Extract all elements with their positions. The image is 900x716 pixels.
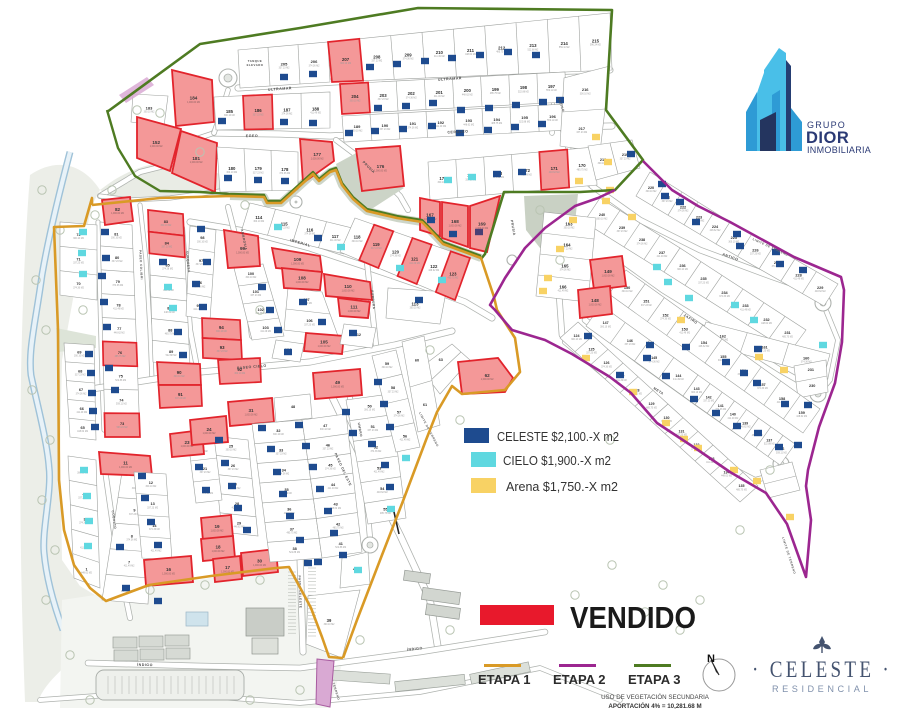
svg-text:208: 208 xyxy=(373,55,381,60)
svg-text:337.23 M2: 337.23 M2 xyxy=(304,324,316,326)
svg-text:337.23 M2: 337.23 M2 xyxy=(586,353,598,355)
svg-text:N: N xyxy=(707,653,715,665)
svg-text:485.75 M2: 485.75 M2 xyxy=(115,356,127,358)
svg-text:411.49 M2: 411.49 M2 xyxy=(328,488,339,490)
svg-text:374.36 M2: 374.36 M2 xyxy=(309,65,321,67)
svg-text:55: 55 xyxy=(383,508,387,512)
svg-text:1,000.00 M2: 1,000.00 M2 xyxy=(602,275,615,277)
svg-text:1,000.00 M2: 1,000.00 M2 xyxy=(449,226,462,228)
svg-text:38: 38 xyxy=(292,547,296,551)
svg-text:300.10 M2: 300.10 M2 xyxy=(111,238,123,240)
svg-text:337.23 M2: 337.23 M2 xyxy=(200,472,212,474)
svg-text:140: 140 xyxy=(730,413,736,417)
svg-text:RESIDENCIAL: RESIDENCIAL xyxy=(772,684,872,694)
svg-text:1,000.00 M2: 1,000.00 M2 xyxy=(181,446,194,448)
svg-text:485.75 M2: 485.75 M2 xyxy=(491,123,503,125)
svg-text:485.75 M2: 485.75 M2 xyxy=(333,528,345,530)
svg-text:374.36 M2: 374.36 M2 xyxy=(325,468,337,470)
svg-text:374.36 M2: 374.36 M2 xyxy=(162,268,174,270)
svg-text:231: 231 xyxy=(784,331,790,335)
svg-text:159: 159 xyxy=(799,411,805,415)
svg-text:300.10 M2: 300.10 M2 xyxy=(352,130,364,132)
svg-text:559.11 M2: 559.11 M2 xyxy=(559,47,570,49)
svg-text:237: 237 xyxy=(659,251,665,255)
svg-text:1,000.00 M2: 1,000.00 M2 xyxy=(203,433,216,435)
svg-text:13: 13 xyxy=(150,502,154,506)
svg-text:1,000.00 M2: 1,000.00 M2 xyxy=(291,263,304,265)
svg-text:214: 214 xyxy=(561,41,569,46)
svg-text:1: 1 xyxy=(85,568,87,572)
svg-text:APORTACIÓN 4% = 10,281.68 M: APORTACIÓN 4% = 10,281.68 M xyxy=(608,702,701,710)
svg-text:146: 146 xyxy=(627,339,633,343)
svg-text:337.23 M2: 337.23 M2 xyxy=(698,282,710,284)
svg-text:300.10 M2: 300.10 M2 xyxy=(145,486,157,488)
svg-text:70: 70 xyxy=(76,282,80,286)
svg-text:105: 105 xyxy=(320,340,328,345)
svg-text:300.10 M2: 300.10 M2 xyxy=(253,221,265,223)
svg-text:337.23 M2: 337.23 M2 xyxy=(253,114,265,116)
svg-text:559.11 M2: 559.11 M2 xyxy=(546,90,557,92)
svg-text:300.10 M2: 300.10 M2 xyxy=(646,191,658,193)
svg-text:131: 131 xyxy=(679,430,685,434)
svg-text:337.23 M2: 337.23 M2 xyxy=(322,449,334,451)
svg-text:337.23 M2: 337.23 M2 xyxy=(641,305,653,307)
svg-text:337.23 M2: 337.23 M2 xyxy=(388,391,400,393)
svg-text:189: 189 xyxy=(354,124,361,129)
svg-text:337.23 M2: 337.23 M2 xyxy=(250,295,262,297)
svg-text:448.62 M2: 448.62 M2 xyxy=(463,124,475,126)
svg-text:300.10 M2: 300.10 M2 xyxy=(73,238,85,240)
svg-text:300.10 M2: 300.10 M2 xyxy=(410,308,422,310)
svg-text:337.23 M2: 337.23 M2 xyxy=(703,401,715,403)
svg-text:374.36 M2: 374.36 M2 xyxy=(390,255,402,257)
svg-text:238: 238 xyxy=(639,238,645,242)
svg-text:1,000.00 M2: 1,000.00 M2 xyxy=(331,386,344,388)
svg-text:198: 198 xyxy=(520,85,528,90)
svg-text:1,000.00 M2: 1,000.00 M2 xyxy=(318,346,331,348)
svg-text:195: 195 xyxy=(521,115,528,120)
svg-text:337.23 M2: 337.23 M2 xyxy=(617,231,629,233)
svg-text:111: 111 xyxy=(350,305,358,310)
svg-text:91: 91 xyxy=(178,392,183,397)
svg-text:57: 57 xyxy=(397,410,401,414)
svg-text:149: 149 xyxy=(604,269,612,274)
svg-text:75: 75 xyxy=(119,375,123,379)
svg-text:559.11 M2: 559.11 M2 xyxy=(116,404,127,406)
svg-text:191: 191 xyxy=(409,121,416,126)
svg-text:240: 240 xyxy=(599,213,605,217)
svg-text:ELEVADO: ELEVADO xyxy=(247,63,264,67)
svg-text:60: 60 xyxy=(415,358,419,362)
svg-text:203: 203 xyxy=(380,93,388,98)
svg-text:300.10 M2: 300.10 M2 xyxy=(324,624,336,626)
svg-text:81: 81 xyxy=(114,232,118,236)
svg-text:12: 12 xyxy=(149,481,153,485)
svg-text:220: 220 xyxy=(648,186,654,190)
svg-text:374.36 M2: 374.36 M2 xyxy=(678,211,690,213)
svg-text:448.62 M2: 448.62 M2 xyxy=(796,416,808,418)
svg-text:522.88 M2: 522.88 M2 xyxy=(764,444,776,446)
svg-text:411.49 M2: 411.49 M2 xyxy=(113,309,124,311)
svg-text:337.23 M2: 337.23 M2 xyxy=(662,201,674,203)
svg-text:184: 184 xyxy=(190,96,198,101)
svg-text:337.23 M2: 337.23 M2 xyxy=(379,129,391,131)
svg-text:300.10 M2: 300.10 M2 xyxy=(197,241,209,243)
svg-text:187: 187 xyxy=(283,107,291,112)
svg-text:ETAPA 1: ETAPA 1 xyxy=(478,672,531,687)
svg-text:411.49 M2: 411.49 M2 xyxy=(434,96,445,98)
svg-text:135: 135 xyxy=(739,484,745,488)
svg-text:Arena $1,750.-X m2: Arena $1,750.-X m2 xyxy=(506,479,618,494)
svg-text:337.23 M2: 337.23 M2 xyxy=(75,375,87,377)
svg-text:61: 61 xyxy=(423,403,427,407)
svg-text:448.62 M2: 448.62 M2 xyxy=(428,270,440,272)
svg-text:171: 171 xyxy=(551,166,559,171)
svg-text:411.49 M2: 411.49 M2 xyxy=(260,331,271,333)
svg-text:411.49 M2: 411.49 M2 xyxy=(728,418,739,420)
svg-text:374.36 M2: 374.36 M2 xyxy=(126,540,138,542)
svg-text:374.36 M2: 374.36 M2 xyxy=(757,388,769,390)
svg-text:374.36 M2: 374.36 M2 xyxy=(406,97,418,99)
svg-text:41: 41 xyxy=(339,542,343,546)
svg-text:217: 217 xyxy=(578,126,585,131)
svg-text:103: 103 xyxy=(262,326,268,330)
svg-text:448.62 M2: 448.62 M2 xyxy=(114,332,126,334)
svg-text:177: 177 xyxy=(313,152,321,157)
svg-text:33: 33 xyxy=(279,449,283,453)
svg-text:90: 90 xyxy=(177,370,182,375)
svg-text:411.49 M2: 411.49 M2 xyxy=(679,332,690,334)
svg-text:337.23 M2: 337.23 M2 xyxy=(750,254,762,256)
svg-text:158: 158 xyxy=(779,397,785,401)
svg-text:485.75 M2: 485.75 M2 xyxy=(380,513,392,515)
svg-text:9: 9 xyxy=(133,509,135,513)
svg-text:300.10 M2: 300.10 M2 xyxy=(160,225,172,227)
svg-text:CIELO $1,900.-X m2: CIELO $1,900.-X m2 xyxy=(503,453,611,468)
svg-text:23: 23 xyxy=(184,440,190,445)
svg-text:98: 98 xyxy=(200,236,204,240)
svg-text:235: 235 xyxy=(700,277,706,281)
svg-text:1,000.00 M2: 1,000.00 M2 xyxy=(211,530,224,532)
svg-text:39: 39 xyxy=(327,618,332,623)
svg-text:42: 42 xyxy=(336,522,340,526)
svg-text:110: 110 xyxy=(344,284,352,289)
svg-text:1,000.00 M2: 1,000.00 M2 xyxy=(342,290,355,292)
svg-text:79: 79 xyxy=(116,280,120,284)
svg-text:1,000.00 M2: 1,000.00 M2 xyxy=(119,467,132,469)
svg-text:300.10 M2: 300.10 M2 xyxy=(320,429,332,431)
svg-text:192: 192 xyxy=(437,120,444,125)
svg-text:137: 137 xyxy=(766,439,772,443)
svg-text:522.88 M2: 522.88 M2 xyxy=(519,121,531,123)
svg-text:97: 97 xyxy=(199,259,203,263)
svg-text:411.49 M2: 411.49 M2 xyxy=(76,412,87,414)
svg-text:337.23 M2: 337.23 M2 xyxy=(279,68,291,70)
svg-text:300.10 M2: 300.10 M2 xyxy=(224,115,236,117)
svg-text:411.49 M2: 411.49 M2 xyxy=(558,291,569,293)
svg-text:101: 101 xyxy=(253,290,259,294)
svg-text:337.23 M2: 337.23 M2 xyxy=(367,430,379,432)
svg-text:1,000.00 M2: 1,000.00 M2 xyxy=(162,573,175,575)
svg-text:183: 183 xyxy=(146,106,153,111)
svg-text:178: 178 xyxy=(281,167,289,172)
svg-text:300.10 M2: 300.10 M2 xyxy=(382,367,394,369)
svg-text:216: 216 xyxy=(582,87,589,92)
svg-text:448.62 M2: 448.62 M2 xyxy=(549,172,561,174)
svg-text:120: 120 xyxy=(392,249,400,254)
svg-text:67: 67 xyxy=(79,388,83,392)
svg-text:411.49 M2: 411.49 M2 xyxy=(151,550,162,552)
svg-text:78: 78 xyxy=(116,304,120,308)
svg-text:1,000.00 M2: 1,000.00 M2 xyxy=(190,162,203,164)
svg-text:374.36 M2: 374.36 M2 xyxy=(660,319,672,321)
svg-text:448.62 M2: 448.62 M2 xyxy=(815,291,827,293)
svg-text:448.62 M2: 448.62 M2 xyxy=(740,426,752,428)
svg-text:19: 19 xyxy=(214,524,220,529)
svg-text:93: 93 xyxy=(220,345,225,350)
svg-text:485.75 M2: 485.75 M2 xyxy=(736,489,748,491)
svg-text:53: 53 xyxy=(377,466,381,470)
svg-text:337.23 M2: 337.23 M2 xyxy=(175,398,187,400)
svg-text:411.49 M2: 411.49 M2 xyxy=(740,309,751,311)
svg-text:210: 210 xyxy=(436,50,444,55)
svg-text:239: 239 xyxy=(619,226,625,230)
svg-text:CELESTE $2,100.-X m2: CELESTE $2,100.-X m2 xyxy=(497,429,619,444)
svg-text:374.36 M2: 374.36 M2 xyxy=(601,366,613,368)
svg-text:161: 161 xyxy=(761,346,767,350)
svg-text:522.88 M2: 522.88 M2 xyxy=(166,355,178,357)
svg-text:VENDIDO: VENDIDO xyxy=(570,600,696,635)
svg-text:448.62 M2: 448.62 M2 xyxy=(462,94,474,96)
svg-text:166: 166 xyxy=(559,285,567,290)
svg-text:ETAPA 3: ETAPA 3 xyxy=(628,672,681,687)
svg-text:100: 100 xyxy=(248,272,254,276)
svg-text:114: 114 xyxy=(255,215,263,220)
svg-text:205: 205 xyxy=(281,62,288,67)
svg-text:1,000.00 M2: 1,000.00 M2 xyxy=(348,311,361,313)
svg-text:209: 209 xyxy=(405,52,413,57)
svg-text:411.49 M2: 411.49 M2 xyxy=(330,240,341,242)
svg-text:165: 165 xyxy=(561,264,569,269)
svg-text:374.36 M2: 374.36 M2 xyxy=(202,493,214,495)
svg-text:374.36 M2: 374.36 M2 xyxy=(370,451,382,453)
svg-text:145: 145 xyxy=(651,356,657,360)
svg-text:143: 143 xyxy=(694,387,700,391)
svg-text:50: 50 xyxy=(367,404,371,408)
svg-text:7: 7 xyxy=(128,560,130,564)
svg-text:215: 215 xyxy=(592,39,600,44)
svg-text:411.49 M2: 411.49 M2 xyxy=(163,290,174,292)
svg-text:197: 197 xyxy=(548,84,556,89)
svg-text:29: 29 xyxy=(237,521,241,525)
svg-text:374.36 M2: 374.36 M2 xyxy=(403,58,415,60)
svg-text:300.10 M2: 300.10 M2 xyxy=(352,241,364,243)
svg-text:337.23 M2: 337.23 M2 xyxy=(371,61,383,63)
svg-text:300.10 M2: 300.10 M2 xyxy=(580,93,592,95)
svg-text:167: 167 xyxy=(426,213,434,218)
svg-text:300.10 M2: 300.10 M2 xyxy=(600,326,612,328)
svg-text:59: 59 xyxy=(385,362,389,366)
svg-text:168: 168 xyxy=(451,219,459,224)
svg-text:48: 48 xyxy=(291,405,295,409)
svg-text:559.11 M2: 559.11 M2 xyxy=(547,120,558,122)
svg-text:1,000.00 M2: 1,000.00 M2 xyxy=(311,159,324,161)
svg-text:1,000.00 M2: 1,000.00 M2 xyxy=(253,565,266,567)
svg-text:374.36 M2: 374.36 M2 xyxy=(649,361,661,363)
svg-text:231: 231 xyxy=(808,368,814,372)
svg-text:116: 116 xyxy=(306,228,314,233)
svg-text:65: 65 xyxy=(80,426,84,430)
svg-text:193: 193 xyxy=(465,118,472,123)
svg-text:448.62 M2: 448.62 M2 xyxy=(77,431,89,433)
svg-text:337.23 M2: 337.23 M2 xyxy=(576,132,588,134)
svg-text:337.23 M2: 337.23 M2 xyxy=(624,344,636,346)
svg-text:11: 11 xyxy=(123,461,128,466)
svg-text:83: 83 xyxy=(164,220,168,224)
svg-text:89: 89 xyxy=(169,350,173,354)
svg-text:300.10 M2: 300.10 M2 xyxy=(691,392,703,394)
svg-text:1,000.00 M2: 1,000.00 M2 xyxy=(187,102,200,104)
svg-text:374.36 M2: 374.36 M2 xyxy=(719,296,731,298)
svg-text:141: 141 xyxy=(718,404,724,408)
svg-text:160: 160 xyxy=(803,357,809,361)
svg-text:207: 207 xyxy=(342,57,350,62)
svg-text:204: 204 xyxy=(351,94,359,99)
svg-text:374.36 M2: 374.36 M2 xyxy=(560,270,572,272)
svg-text:300.10 M2: 300.10 M2 xyxy=(364,409,376,411)
svg-text:47: 47 xyxy=(323,424,327,428)
svg-text:24: 24 xyxy=(206,427,212,432)
svg-text:485.75 M2: 485.75 M2 xyxy=(646,407,658,409)
svg-text:234: 234 xyxy=(721,291,728,295)
svg-text:448.62 M2: 448.62 M2 xyxy=(465,54,477,56)
svg-text:485.75 M2: 485.75 M2 xyxy=(577,169,589,171)
svg-text:448.62 M2: 448.62 M2 xyxy=(710,230,722,232)
svg-text:102: 102 xyxy=(258,308,264,312)
svg-text:522.88 M2: 522.88 M2 xyxy=(289,552,301,554)
svg-text:16: 16 xyxy=(166,567,172,572)
svg-text:179: 179 xyxy=(255,166,263,171)
svg-text:337.23 M2: 337.23 M2 xyxy=(161,247,173,249)
svg-text:144: 144 xyxy=(675,374,681,378)
svg-text:224: 224 xyxy=(712,225,719,229)
svg-text:337.23 M2: 337.23 M2 xyxy=(228,469,240,471)
svg-text:88: 88 xyxy=(168,328,172,332)
svg-text:485.75 M2: 485.75 M2 xyxy=(447,277,459,279)
svg-text:448.62 M2: 448.62 M2 xyxy=(81,573,93,575)
svg-text:63: 63 xyxy=(439,358,443,362)
svg-text:374.36 M2: 374.36 M2 xyxy=(281,113,293,115)
svg-text:147: 147 xyxy=(603,321,609,325)
svg-text:94: 94 xyxy=(219,325,224,330)
svg-text:142: 142 xyxy=(706,395,712,399)
svg-text:222: 222 xyxy=(680,206,686,210)
svg-text:129: 129 xyxy=(649,402,655,406)
svg-text:411.49 M2: 411.49 M2 xyxy=(409,263,420,265)
svg-text:485.75 M2: 485.75 M2 xyxy=(490,93,502,95)
svg-text:122: 122 xyxy=(430,264,438,269)
svg-text:170: 170 xyxy=(579,163,587,168)
svg-text:411.49 M2: 411.49 M2 xyxy=(310,113,321,115)
svg-text:154: 154 xyxy=(701,341,708,345)
svg-text:337.23 M2: 337.23 M2 xyxy=(371,248,383,250)
svg-text:411.49 M2: 411.49 M2 xyxy=(793,279,804,281)
svg-text:559.11 M2: 559.11 M2 xyxy=(776,452,787,454)
svg-text:18: 18 xyxy=(215,545,221,550)
svg-text:202: 202 xyxy=(408,91,416,96)
svg-text:374.36 M2: 374.36 M2 xyxy=(394,415,406,417)
svg-text:INMOBILIARIA: INMOBILIARIA xyxy=(807,145,871,155)
svg-text:485.75 M2: 485.75 M2 xyxy=(782,336,794,338)
svg-text:211: 211 xyxy=(467,48,475,53)
svg-text:USO DE VEGETACIÓN SECUNDARIA: USO DE VEGETACIÓN SECUNDARIA xyxy=(601,694,710,701)
svg-text:337.23 M2: 337.23 M2 xyxy=(276,454,288,456)
svg-text:153: 153 xyxy=(682,327,688,331)
svg-text:EGEO: EGEO xyxy=(246,134,258,138)
svg-text:37: 37 xyxy=(290,527,294,531)
svg-text:71: 71 xyxy=(76,258,80,262)
svg-text:26: 26 xyxy=(231,464,235,468)
svg-text:411.49 M2: 411.49 M2 xyxy=(434,56,445,58)
svg-text:106: 106 xyxy=(306,319,312,323)
svg-text:32: 32 xyxy=(276,429,280,433)
svg-text:68: 68 xyxy=(78,369,82,373)
svg-text:300.10 M2: 300.10 M2 xyxy=(677,269,689,271)
svg-text:374.36 M2: 374.36 M2 xyxy=(76,393,88,395)
svg-text:31: 31 xyxy=(248,408,254,413)
svg-text:448.62 M2: 448.62 M2 xyxy=(164,312,176,314)
svg-text:148: 148 xyxy=(591,298,599,303)
svg-text:124: 124 xyxy=(574,334,580,338)
svg-text:108: 108 xyxy=(298,276,306,281)
svg-text:152: 152 xyxy=(662,314,668,318)
svg-text:76: 76 xyxy=(118,351,122,355)
svg-text:188: 188 xyxy=(312,106,320,111)
svg-text:126: 126 xyxy=(604,361,610,365)
svg-text:448.62 M2: 448.62 M2 xyxy=(377,492,389,494)
svg-text:66: 66 xyxy=(80,407,84,411)
svg-text:233: 233 xyxy=(742,304,748,308)
svg-text:73: 73 xyxy=(120,422,124,426)
svg-text:1,000.00 M2: 1,000.00 M2 xyxy=(589,304,602,306)
svg-text:109: 109 xyxy=(294,257,302,262)
svg-text:51: 51 xyxy=(371,425,375,429)
svg-text:190: 190 xyxy=(382,123,389,128)
svg-text:522.88 M2: 522.88 M2 xyxy=(115,380,127,382)
svg-text:176: 176 xyxy=(377,164,385,169)
svg-text:448.62 M2: 448.62 M2 xyxy=(761,323,773,325)
svg-text:300.10 M2: 300.10 M2 xyxy=(273,434,285,436)
svg-text:596.24 M2: 596.24 M2 xyxy=(117,427,129,429)
svg-text:411.49 M2: 411.49 M2 xyxy=(657,256,668,258)
svg-text:337.23 M2: 337.23 M2 xyxy=(217,351,229,353)
svg-text:169: 169 xyxy=(478,222,486,227)
svg-text:229: 229 xyxy=(817,286,823,290)
svg-text:300.10 M2: 300.10 M2 xyxy=(350,100,362,102)
svg-text:1,000.00 M2: 1,000.00 M2 xyxy=(296,282,309,284)
svg-text:180: 180 xyxy=(228,166,236,171)
svg-text:199: 199 xyxy=(492,87,500,92)
svg-text:374.36 M2: 374.36 M2 xyxy=(407,127,419,129)
svg-text:300.10 M2: 300.10 M2 xyxy=(74,356,86,358)
svg-text:300.10 M2: 300.10 M2 xyxy=(226,172,238,174)
svg-text:155: 155 xyxy=(720,355,726,359)
svg-text:448.62 M2: 448.62 M2 xyxy=(698,346,710,348)
svg-text:374.36 M2: 374.36 M2 xyxy=(637,243,649,245)
svg-text:300.10 M2: 300.10 M2 xyxy=(622,291,634,293)
svg-text:337.23 M2: 337.23 M2 xyxy=(253,172,265,174)
svg-text:374.36 M2: 374.36 M2 xyxy=(149,529,161,531)
